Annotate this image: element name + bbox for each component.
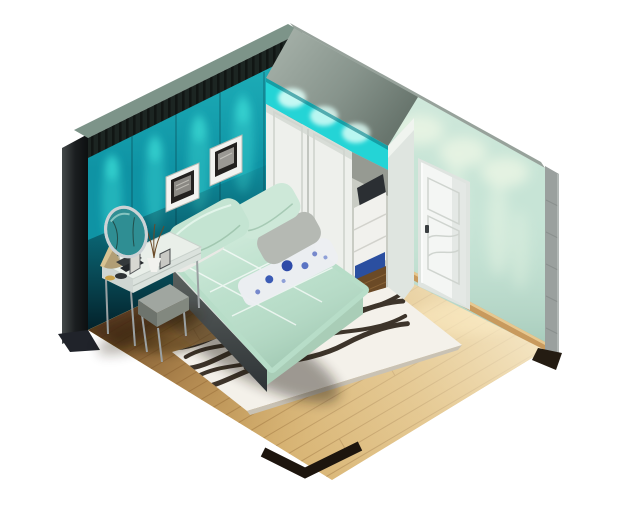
interior-door xyxy=(418,158,470,310)
isometric-bedroom-render xyxy=(0,0,640,512)
round-box xyxy=(115,273,127,279)
room-render-canvas xyxy=(0,0,640,512)
gold-dish xyxy=(105,276,115,281)
door-handle xyxy=(425,225,429,233)
concrete-cut-edge xyxy=(545,166,559,360)
cut-wall-edge-left xyxy=(62,134,88,344)
